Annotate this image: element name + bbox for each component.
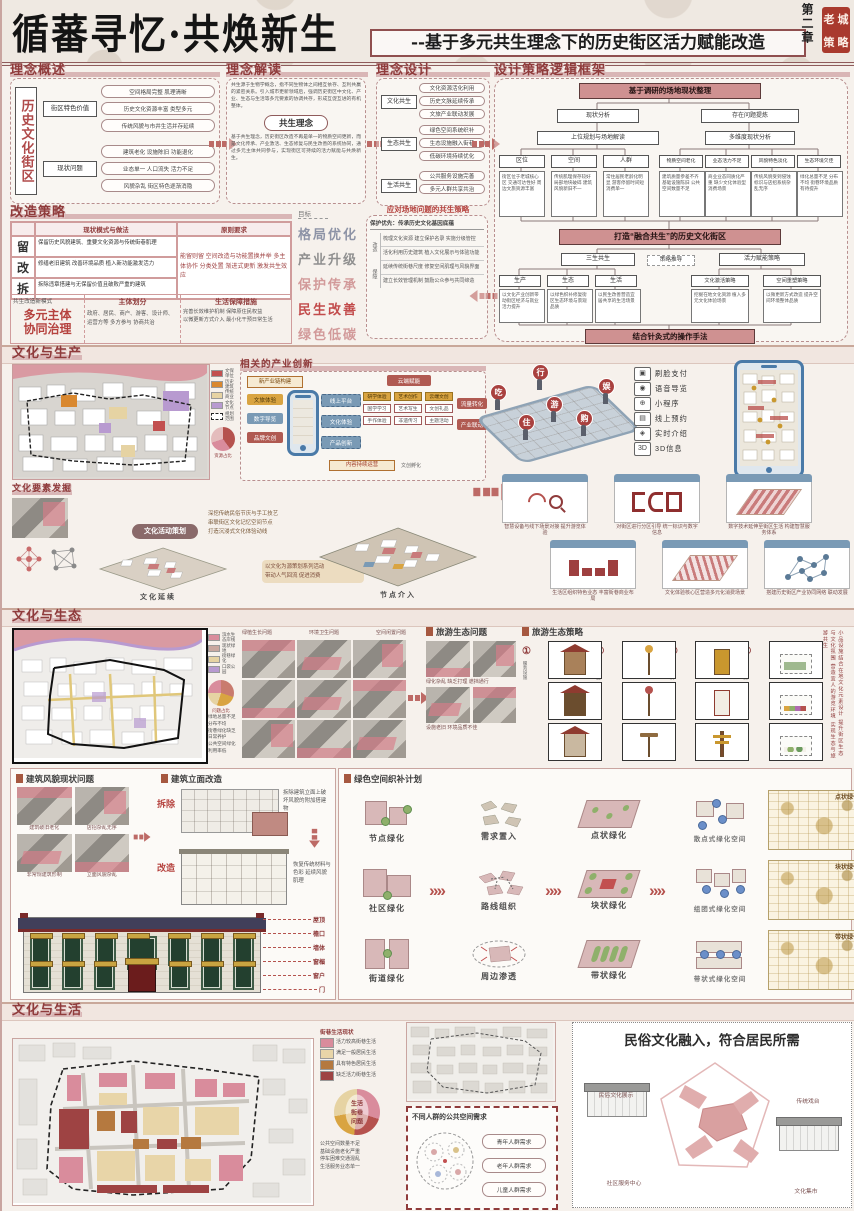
industry-caption: 文创孵化 xyxy=(401,462,421,469)
concept-overview-panel: 理念概述 历史文化街区 街区特色价值 空间格局完整 肌理清晰 历史文化资源丰富 … xyxy=(10,64,220,204)
greening-label: 周边渗透 xyxy=(481,971,517,982)
industry-panel: 相关的产业创新 新产业链构建 云端赋能 文旅体验 数字导览 品牌文创 线上平台 … xyxy=(240,358,486,482)
network-icon xyxy=(764,548,850,589)
folk-title: 民俗文化融入，符合居民所需 xyxy=(573,1029,851,1049)
page-title: 循蕃寻忆·共焕新生 xyxy=(12,1,339,60)
needs-item: 青年人群需求 xyxy=(482,1134,546,1149)
site-model-1 xyxy=(98,546,228,592)
building-label: 民俗文化展示 xyxy=(587,1093,645,1100)
smart-device-icon xyxy=(502,482,588,523)
response-row: 活化利用历史建筑 植入文化展示与体验功能 xyxy=(381,247,484,261)
group-label: 街区特色价值 xyxy=(43,101,97,117)
framework-mid-tag: 策略推导 xyxy=(647,255,695,266)
table-corner xyxy=(11,222,35,236)
ecology-map-graphic xyxy=(14,630,202,758)
flow-card: 数字技术延伸至街区生活 构建智慧服务体系 xyxy=(726,474,812,536)
card-caption: 文化体验核心区营造多元化消费场景 xyxy=(662,590,748,596)
needs-item: 儿童人群需求 xyxy=(482,1182,546,1197)
design-pill: 多元人群共享共治 xyxy=(419,184,485,194)
legend-label: 历史建筑 xyxy=(225,380,237,390)
seal-char: 略 xyxy=(838,34,849,50)
greening-grid: 节点绿化 需求置入 点状绿化 散点式绿化空间 点状绿化 社区绿化 »» 路线组织… xyxy=(345,787,845,993)
problem-photo xyxy=(426,641,470,677)
goal-item: 格局优化 xyxy=(298,229,362,242)
greening-row: 节点绿化 需求置入 点状绿化 散点式绿化空间 点状绿化 xyxy=(345,787,854,853)
side-label: 历史文化街区 xyxy=(17,99,36,183)
design-row-label: 生活共生 xyxy=(381,179,417,193)
section-title: 改造策略 xyxy=(10,206,292,220)
card-caption: 生活区组织特色业态 丰富街巷商业布局 xyxy=(550,590,636,602)
framework-text: 以绿色织补修复街区生态环境与景观品质 xyxy=(547,289,593,323)
bench-icon xyxy=(622,723,676,761)
callout-label: 墙体 xyxy=(313,943,325,952)
framework-text: 以文化产业创新带动街区经济与就业活力提升 xyxy=(499,289,545,323)
grid-cell: 手作体验 xyxy=(363,416,391,425)
street-photo xyxy=(353,720,406,758)
card-caption: 智慧设备与线下场景对接 提升游览体验 xyxy=(502,524,588,536)
overview-pill: 历史文化资源丰富 类型多元 xyxy=(101,102,215,115)
photo-caption: 绿植生长问题 xyxy=(242,630,272,636)
furniture-column: ② 景观小品 xyxy=(596,641,666,761)
problem-note: 绿化杂乱 缺乏打理 遮挡通行 xyxy=(426,679,516,685)
block-title: 旅游生态问题 xyxy=(436,627,487,637)
life-bullet: 停车困难交通混乱 xyxy=(320,1156,394,1164)
photo-caption: 立面风貌杂乱 xyxy=(75,872,130,878)
interpretation-para2: 基于共生理念，历史街区改造不再是单一的物质空间更新，而是文化传承、产业激活、生态… xyxy=(231,135,361,163)
seal-char: 城 xyxy=(838,11,849,27)
ecology-bullet: 街巷绿化缺乏日常养护 xyxy=(208,728,236,742)
callout-label: 门 xyxy=(319,985,325,994)
feature-label: 3D信息 xyxy=(655,444,683,454)
street-photo xyxy=(242,720,295,758)
life-bullet: 基础设施老化严重 xyxy=(320,1149,394,1157)
signage-blocks-icon xyxy=(614,482,700,523)
framework-text: 传统风貌受到侵蚀 标识与店招系统杂乱无序 xyxy=(751,171,797,217)
interpretation-box: 共生源于生物学概念，指不同生物体之间相互依存、互利共赢的紧密关系。引入城市更新领… xyxy=(226,78,366,204)
context-map-graphic xyxy=(407,1023,553,1099)
feature-label: 语音导览 xyxy=(655,384,688,394)
response-row: 梳理文化资源 建立保护名录 实施分级管控 xyxy=(381,233,484,247)
row-text: 修缮老旧建筑 改善环境品质 植入新功能激发活力 xyxy=(35,257,177,278)
live-intro-icon: ◈ xyxy=(634,427,651,441)
industry-pill: 产品创新 xyxy=(321,436,361,449)
concept-interpretation-panel: 理念解读 共生源于生物学概念，指不同生物体之间相互依存、互利共赢的紧密关系。引入… xyxy=(226,64,368,206)
grid-cell: 非遗传习 xyxy=(394,416,422,425)
building-label: 社区服务中心 xyxy=(595,1181,653,1188)
interpretation-para1: 共生源于生物学概念，指不同生物体之间相互依存、互利共赢的紧密关系。引入城市更新领… xyxy=(231,83,361,111)
group-label: 现状问题 xyxy=(43,161,97,177)
face-pay-icon: ▣ xyxy=(634,367,651,381)
lower-window-row xyxy=(32,966,252,992)
callout-label: 檐口 xyxy=(313,929,325,938)
row-key: 改 xyxy=(11,257,35,278)
industry-pill: 文化体验 xyxy=(321,415,361,428)
goal-item: 产业升级 xyxy=(298,254,362,267)
industry-tag: 数字导览 xyxy=(247,413,283,424)
response-head: 保护优先：传承历史文化基因底蕴 xyxy=(370,219,484,230)
row-text: 保留历史风貌建筑、重要文化资源与传统街巷肌理 xyxy=(35,236,177,257)
renovation-bottom: 共生改造新模式 多元主体 协同治理 主体划分 政府、居民、商户、游客、设计师、运… xyxy=(10,294,292,344)
kiosk-icon xyxy=(548,723,602,761)
industry-tag: 文旅体验 xyxy=(247,394,283,405)
photo-caption: 空间闲置问题 xyxy=(376,630,406,636)
facade-photo xyxy=(75,834,130,872)
design-pill: 文化资源活化利用 xyxy=(419,83,485,93)
column-header: 原则要求 xyxy=(177,222,291,236)
design-pill: 历史文脉延续传承 xyxy=(419,96,485,106)
greening-label: 路线组织 xyxy=(481,901,517,912)
greening-map: 点状绿化 xyxy=(768,790,854,850)
industry-tag-top: 新产业链构建 xyxy=(247,376,303,388)
framework-node: 三生共生 xyxy=(561,253,635,266)
app-feature-list: ▣刷脸支付 ◉语音导览 ⊕小程序 ▤线上预约 ◈实时介绍 3D3D信息 xyxy=(634,366,726,456)
pill-list: 建筑老化 设施陈旧 功能退化 业态单一 人口流失 活力不足 风貌杂乱 街区特色逐… xyxy=(101,145,215,192)
framework-node: 业态活力不足 xyxy=(705,155,749,168)
renovation-panel: 改造策略 现状模式与做法 原则要求 留 保留历史风貌建筑、重要文化资源与传统街巷… xyxy=(10,206,292,342)
subject-title: 主体划分 xyxy=(87,297,178,307)
needs-panel: 不同人群的公共空间需求 青年人群需求 老年人群需求 儿童人群需求 xyxy=(406,1106,558,1210)
photo-captions: 绿植生长问题 环境卫生问题 空间闲置问题 xyxy=(242,630,406,636)
down-arrow-icon xyxy=(309,829,320,853)
guarantee-text: 完善长效维护机制 保障原住民权益 以微更新方式介入 最小化干预日常生活 xyxy=(183,309,289,325)
phone-map-graphic xyxy=(740,370,798,466)
building-label: 传统戏台 xyxy=(779,1099,837,1106)
step-note: 拆除建筑立面上破坏风貌的附加搭建物 xyxy=(283,789,329,813)
eco-side-note: 小品设施结合在地文化元素设计 提升街区生态与文化氛围 营造宜人的游览环境 实现生… xyxy=(820,630,843,760)
framework-node: 物质空间老化 xyxy=(659,155,703,168)
legend-label: 传统商业 xyxy=(225,390,237,400)
row-key: 留 xyxy=(11,236,35,257)
signboard-icon xyxy=(695,641,749,679)
framework-text: 挖掘在地文化资源 植入多元文化体验场景 xyxy=(691,289,749,323)
framework-node: 空间重塑策略 xyxy=(763,275,821,287)
facade-photo xyxy=(75,787,130,825)
greening-label: 街道绿化 xyxy=(369,973,405,984)
section-title: 文化与生产 xyxy=(12,347,82,361)
goal-item: 保护传承 xyxy=(298,279,362,292)
goals-panel: 目标 格局优化 产业升级 保护传承 民生改善 绿色低碳 xyxy=(298,208,362,340)
legend-label: 缺乏活力街巷生活 xyxy=(336,1073,376,1079)
greening-label: 需求置入 xyxy=(481,831,517,842)
greening-row: 街道绿化 周边渗透 带状绿化 带状式绿化空间 带状绿化 xyxy=(345,927,854,993)
flow-card: 智慧设备与线下场景对接 提升游览体验 xyxy=(502,474,588,536)
response-box: 保护优先：传承历史文化基因底蕴 改造 保障 梳理文化资源 建立保护名录 实施分级… xyxy=(366,215,488,339)
model-label: 节点介入 xyxy=(380,590,416,600)
goals-label: 目标 xyxy=(298,208,328,219)
mini-program-icon: ⊕ xyxy=(634,397,651,411)
culture-map-legend: 文保单位 历史建筑 传统商业 文化节点 规划范围 资源占比 xyxy=(211,368,237,459)
elevation-callouts: 屋顶 檐口 墙体 窗楣 窗户 门 xyxy=(263,915,325,994)
problem-note: 设施老旧 环境品质不佳 xyxy=(426,725,516,731)
facade-photo xyxy=(17,834,72,872)
feature-label: 实时介绍 xyxy=(655,429,688,439)
discovery-area: 文化活动策划 深挖传统民俗节庆与手工技艺 串联街区文化记忆空间节点 打造沉浸式文… xyxy=(12,496,478,604)
framework-text: 街区位于老城核心区 交通可达性好 周边文旅资源丰富 xyxy=(499,171,545,217)
life-map xyxy=(12,1038,314,1206)
needs-item: 老年人群需求 xyxy=(482,1158,546,1173)
grid-cell: 文创礼品 xyxy=(425,404,453,413)
overview-pill: 空间格局完整 肌理清晰 xyxy=(101,85,215,98)
industry-tag-cloud: 云端赋能 xyxy=(387,375,431,386)
pill-list: 文化资源活化利用 历史文脉延续传承 文旅产业联动发展 xyxy=(419,83,485,119)
building-model-after xyxy=(181,853,287,905)
iso-phone-scene: 吃 行 游 住 购 娱 xyxy=(488,366,624,470)
block-title: 绿色空间织补计划 xyxy=(354,774,422,784)
industry-bottom-tag: 内容持续运营 xyxy=(329,460,395,471)
facade-elevation xyxy=(23,917,261,993)
greening-label: 社区绿化 xyxy=(369,903,405,914)
industry-box: 新产业链构建 云端赋能 文旅体验 数字导览 品牌文创 线上平台 文化体验 产品创… xyxy=(240,371,486,481)
overview-pill: 建筑老化 设施陈旧 功能退化 xyxy=(101,145,215,158)
feature-label: 刷脸支付 xyxy=(655,369,688,379)
life-legend: 街巷生活现状 活力较高街巷生活 满足一般居民生活 具有特色居民生活 缺乏活力街巷… xyxy=(320,1028,394,1171)
callout-label: 屋顶 xyxy=(313,915,325,924)
voice-guide-icon: ◉ xyxy=(634,382,651,396)
grid-head: 艺术创作 xyxy=(394,392,422,401)
chevron-arrow-icon: »» xyxy=(429,882,453,899)
response-row: 建立长效管理机制 鼓励公众参与共同缔造 xyxy=(381,275,484,288)
ecology-photo-grid xyxy=(242,640,406,758)
greening-row: 社区绿化 »» 路线组织 »» 块状绿化 »» 组团式绿化空间 块状绿化 xyxy=(345,857,854,923)
street-photo xyxy=(242,640,295,678)
framework-text: 商业业态同质化严重 缺少文化体验型消费场景 xyxy=(705,171,751,217)
renovation-table: 现状模式与做法 原则要求 留 保留历史风貌建筑、重要文化资源与传统街巷肌理 能留… xyxy=(10,221,292,300)
problem-photo xyxy=(426,687,470,723)
photo-caption: 建筑破旧老化 xyxy=(17,825,72,831)
mode-label: 共生改造新模式 xyxy=(13,297,82,305)
folk-panel: 民俗文化融入，符合居民所需 民俗文化展示 传统戏台 社区服务中心 文化集市 xyxy=(572,1022,852,1208)
furniture-column: ③ 标识系统 xyxy=(669,641,739,761)
planter-icon xyxy=(769,723,823,761)
legend-label: 文保单位 xyxy=(225,369,237,379)
legend-title: 街巷生活现状 xyxy=(320,1028,394,1036)
furniture-column: ④ 种植设施 xyxy=(743,641,813,761)
legend-label: 现状绿地 xyxy=(222,644,236,654)
framework-node: 生态 xyxy=(547,275,589,287)
problem-photo xyxy=(473,641,517,677)
folk-diagram xyxy=(655,1057,775,1175)
grid-head: 研学体验 xyxy=(363,392,391,401)
lamp-icon xyxy=(622,641,676,679)
map-caption: 文化要素发掘 xyxy=(12,482,72,496)
iso-map-icon xyxy=(726,482,812,523)
framework-node: 风貌特色淡化 xyxy=(751,155,795,168)
page-subtitle: --基于多元共生理念下的历史街区活力赋能改造 xyxy=(370,29,806,57)
signboard-icon xyxy=(695,682,749,720)
design-pill: 公共服务设施完善 xyxy=(419,171,485,181)
principle-text: 能留则留 空间改造与功能置换并举 多主体协作 分类处置 渐进式更新 激发共生效应 xyxy=(177,236,291,299)
step-note: 恢复传统材料与色彩 延续风貌肌理 xyxy=(293,861,331,885)
section-title: 文化与生态 xyxy=(12,610,82,624)
legend-label: 满足一般居民生活 xyxy=(336,1051,376,1057)
context-map xyxy=(406,1022,556,1102)
chevron-arrow-icon: »» xyxy=(545,882,569,899)
card-caption: 数字技术延伸至街区生活 构建智慧服务体系 xyxy=(726,524,812,536)
street-photo xyxy=(242,680,295,718)
framework-node: 人群 xyxy=(603,155,649,168)
industry-grid: 研学体验 艺术创作 云端文创 国学学习 艺术写生 文创礼品 手作体验 非遗传习 … xyxy=(363,392,453,425)
eco-strategy-block: 旅游生态策略 ① 服务设施 ② 景观小品 xyxy=(522,626,812,764)
grid-cell: 主题活动 xyxy=(425,416,453,425)
addition-volume xyxy=(252,812,288,836)
seal-char: 策 xyxy=(824,34,835,50)
framework-node: 存在问题提炼 xyxy=(701,109,799,123)
life-bullet: 公共空间数量不足 xyxy=(320,1141,394,1149)
legend-label: 活力较高街巷生活 xyxy=(336,1040,376,1046)
section-title: 文化与生活 xyxy=(12,1004,82,1018)
greening-label: 带状式绿化空间 xyxy=(694,973,747,983)
facade-photos: 建筑破旧老化 店招杂乱无序 非常规建筑形制 立面风貌杂乱 xyxy=(17,787,129,878)
eco-problem-block: 旅游生态问题 绿化杂乱 缺乏打理 遮挡通行 设施老旧 环境品质不佳 xyxy=(426,626,516,762)
framework-top-banner: 基于调研的场地现状整理 xyxy=(579,83,761,99)
feature-label: 线上预约 xyxy=(655,414,688,424)
card-caption: 对街区进行分区引导 统一标识与数字信息 xyxy=(614,524,700,536)
block-title: 建筑风貌现状问题 xyxy=(26,774,94,784)
life-bullet: 生活服务业态单一 xyxy=(320,1164,394,1172)
map-phone xyxy=(734,360,804,478)
framework-mid-banner: 打造“融合共生”的历史文化街区 xyxy=(559,229,781,245)
column-label: 服务设施 xyxy=(522,661,528,679)
section-title: 理念解读 xyxy=(226,64,368,78)
greening-label: 散点式绿化空间 xyxy=(694,833,747,843)
culture-map xyxy=(12,364,210,480)
design-row-label: 文化共生 xyxy=(381,95,417,109)
section-title: 理念概述 xyxy=(10,64,220,78)
life-band: 文化与生活 xyxy=(2,1002,854,1021)
overview-pill: 业态单一 人口流失 活力不足 xyxy=(101,162,215,175)
overview-box: 历史文化街区 街区特色价值 空间格局完整 肌理清晰 历史文化资源丰富 类型多元 … xyxy=(10,78,220,204)
problem-photo xyxy=(473,687,517,723)
framework-node: 上位规划与场地解读 xyxy=(537,131,659,145)
framework-panel: 设计策略逻辑框架 基于调研的场地现状整理 现状分析 存在问题提炼 上位规划与场地… xyxy=(494,64,850,342)
card-caption: 搭建历史街区产业协同网络 联动发展 xyxy=(764,590,850,596)
ecology-map xyxy=(12,628,208,764)
grid-cell: 国学学习 xyxy=(363,404,391,413)
column-number: ① xyxy=(522,646,531,657)
street-photo xyxy=(353,640,406,678)
column-header: 现状模式与做法 xyxy=(35,222,177,236)
framework-text: 传统肌理保存较好 局部地块破碎 建筑风貌新旧不一 xyxy=(551,171,597,217)
resource-pie-chart xyxy=(211,427,235,451)
step-label: 改造 xyxy=(157,861,175,874)
framework-text: 绿化总量不足 分布不均 街巷环境品质有待提升 xyxy=(797,171,843,217)
greening-label: 块状绿化 xyxy=(591,900,627,911)
planter-icon xyxy=(769,641,823,679)
legend-label: 规划范围 xyxy=(225,412,237,422)
framework-node: 文化激活策略 xyxy=(691,275,749,287)
flow-card: 搭建历史街区产业协同网络 联动发展 xyxy=(764,540,850,596)
map-corner-label: 带状绿化 xyxy=(835,932,854,941)
greening-map: 带状绿化 xyxy=(768,930,854,990)
legend-label: 街巷绿化 xyxy=(222,654,236,664)
life-pie-chart: 生活 街巷问题 xyxy=(334,1089,380,1135)
greening-label: 节点绿化 xyxy=(369,833,405,844)
flow-arrow-icon xyxy=(134,832,156,842)
design-row-label: 生态共生 xyxy=(381,137,417,151)
design-pill: 低碳环境持续优化 xyxy=(419,151,485,161)
street-photo xyxy=(353,680,406,718)
industry-title: 相关的产业创新 xyxy=(240,358,486,372)
culture-network-icon xyxy=(48,544,78,574)
framework-node: 活力赋能策略 xyxy=(719,253,805,266)
greening-label: 点状绿化 xyxy=(591,830,627,841)
signpost-icon xyxy=(695,723,749,761)
framework-box: 基于调研的场地现状整理 现状分析 存在问题提炼 上位规划与场地解读 多维度现状分… xyxy=(494,78,848,342)
app-phone xyxy=(287,390,319,456)
roof-band xyxy=(18,918,266,932)
design-pill: 文旅产业联动发展 xyxy=(419,109,485,119)
legend-label: 口袋公园 xyxy=(222,665,236,675)
framework-node: 生产 xyxy=(499,275,541,287)
culture-photo xyxy=(12,498,68,538)
online-booking-icon: ▤ xyxy=(634,412,651,426)
pie-label: 生活 街巷问题 xyxy=(346,1095,369,1130)
poster: 循蕃寻忆·共焕新生 --基于多元共生理念下的历史街区活力赋能改造 第二章 老 城… xyxy=(0,0,854,1211)
callout-label: 窗楣 xyxy=(313,957,325,966)
flow-card: 生活区组织特色业态 丰富街巷商业布局 xyxy=(550,540,636,602)
photo-caption: 非常规建筑形制 xyxy=(17,872,72,878)
response-title: 应对场地问题的共生策略 xyxy=(366,204,490,215)
site-model-2 xyxy=(318,526,478,588)
guarantee-title: 生活保障措施 xyxy=(183,297,289,307)
pill-list: 公共服务设施完善 多元人群共享共治 xyxy=(419,171,485,194)
industry-tag: 品牌文创 xyxy=(247,432,283,443)
framework-text: 以微更新方式改造 提升空间环境整体品质 xyxy=(763,289,821,323)
poster-header: 循蕃寻忆·共焕新生 --基于多元共生理念下的历史街区活力赋能改造 第二章 老 城… xyxy=(2,0,854,66)
goal-item: 民生改善 xyxy=(298,304,362,317)
greening-panel: 绿色空间织补计划 节点绿化 需求置入 点状绿化 散点式绿化空间 点状绿化 社区绿… xyxy=(338,768,852,1000)
activity-notes: 深挖传统民俗节庆与手工技艺 串联街区文化记忆空间节点 打造沉浸式文化体验动线 xyxy=(208,510,326,538)
overview-pill: 传统风貌与市井生活并存延续 xyxy=(101,119,215,132)
seal-char: 老 xyxy=(824,11,835,27)
subject-text: 政府、居民、商户、游客、设计师、运营方等 多方参与 协商共治 xyxy=(87,310,178,327)
chapter-label: 第二章 xyxy=(802,3,816,45)
street-photo xyxy=(297,680,350,718)
framework-node: 区位 xyxy=(499,155,545,168)
needs-diagram xyxy=(414,1130,476,1192)
planter-icon xyxy=(769,682,823,720)
response-row: 延续传统街巷尺度 修复空间肌理与风貌界面 xyxy=(381,261,484,275)
building-label: 文化集市 xyxy=(777,1189,835,1196)
side-label-box: 历史文化街区 xyxy=(15,87,37,195)
mode-value: 多元主体 协同治理 xyxy=(13,308,82,337)
roof-band xyxy=(179,849,289,854)
greening-label: 带状绿化 xyxy=(591,970,627,981)
kiosk-icon xyxy=(548,641,602,679)
model-label: 文化延续 xyxy=(140,592,176,602)
flow-card: 文化体验核心区营造多元化消费场景 xyxy=(662,540,748,596)
section-title: 理念设计 xyxy=(376,64,490,78)
industry-tag: 流量转化 xyxy=(457,398,487,409)
ecology-band: 文化与生态 xyxy=(2,608,854,627)
response-side-label: 保障 xyxy=(372,269,379,279)
framework-node: 多维度现状分析 xyxy=(705,131,795,145)
framework-node: 现状分析 xyxy=(557,109,639,123)
kiosk-icon xyxy=(548,682,602,720)
activity-box: 文化活动策划 xyxy=(132,524,198,539)
pill-list: 空间格局完整 肌理清晰 历史文化资源丰富 类型多元 传统风貌与市井生活并存延续 xyxy=(101,85,215,132)
legend-label: 具有特色居民生活 xyxy=(336,1062,376,1068)
needs-title: 不同人群的公共空间需求 xyxy=(408,1108,556,1124)
grid-head: 云端文创 xyxy=(425,392,453,401)
goal-item: 绿色低碳 xyxy=(298,329,362,342)
ecology-bullet: 绿地总量不足 分布不均 xyxy=(208,714,236,728)
block-title: 旅游生态策略 xyxy=(532,627,583,637)
culture-map-graphic xyxy=(13,365,207,477)
framework-text: 以民生改善营造宜居共享的生活场景 xyxy=(595,289,641,323)
framework-text: 建筑质量参差不齐 基础设施陈旧 公共空间数量不足 xyxy=(659,171,705,217)
facade-photo xyxy=(17,787,72,825)
